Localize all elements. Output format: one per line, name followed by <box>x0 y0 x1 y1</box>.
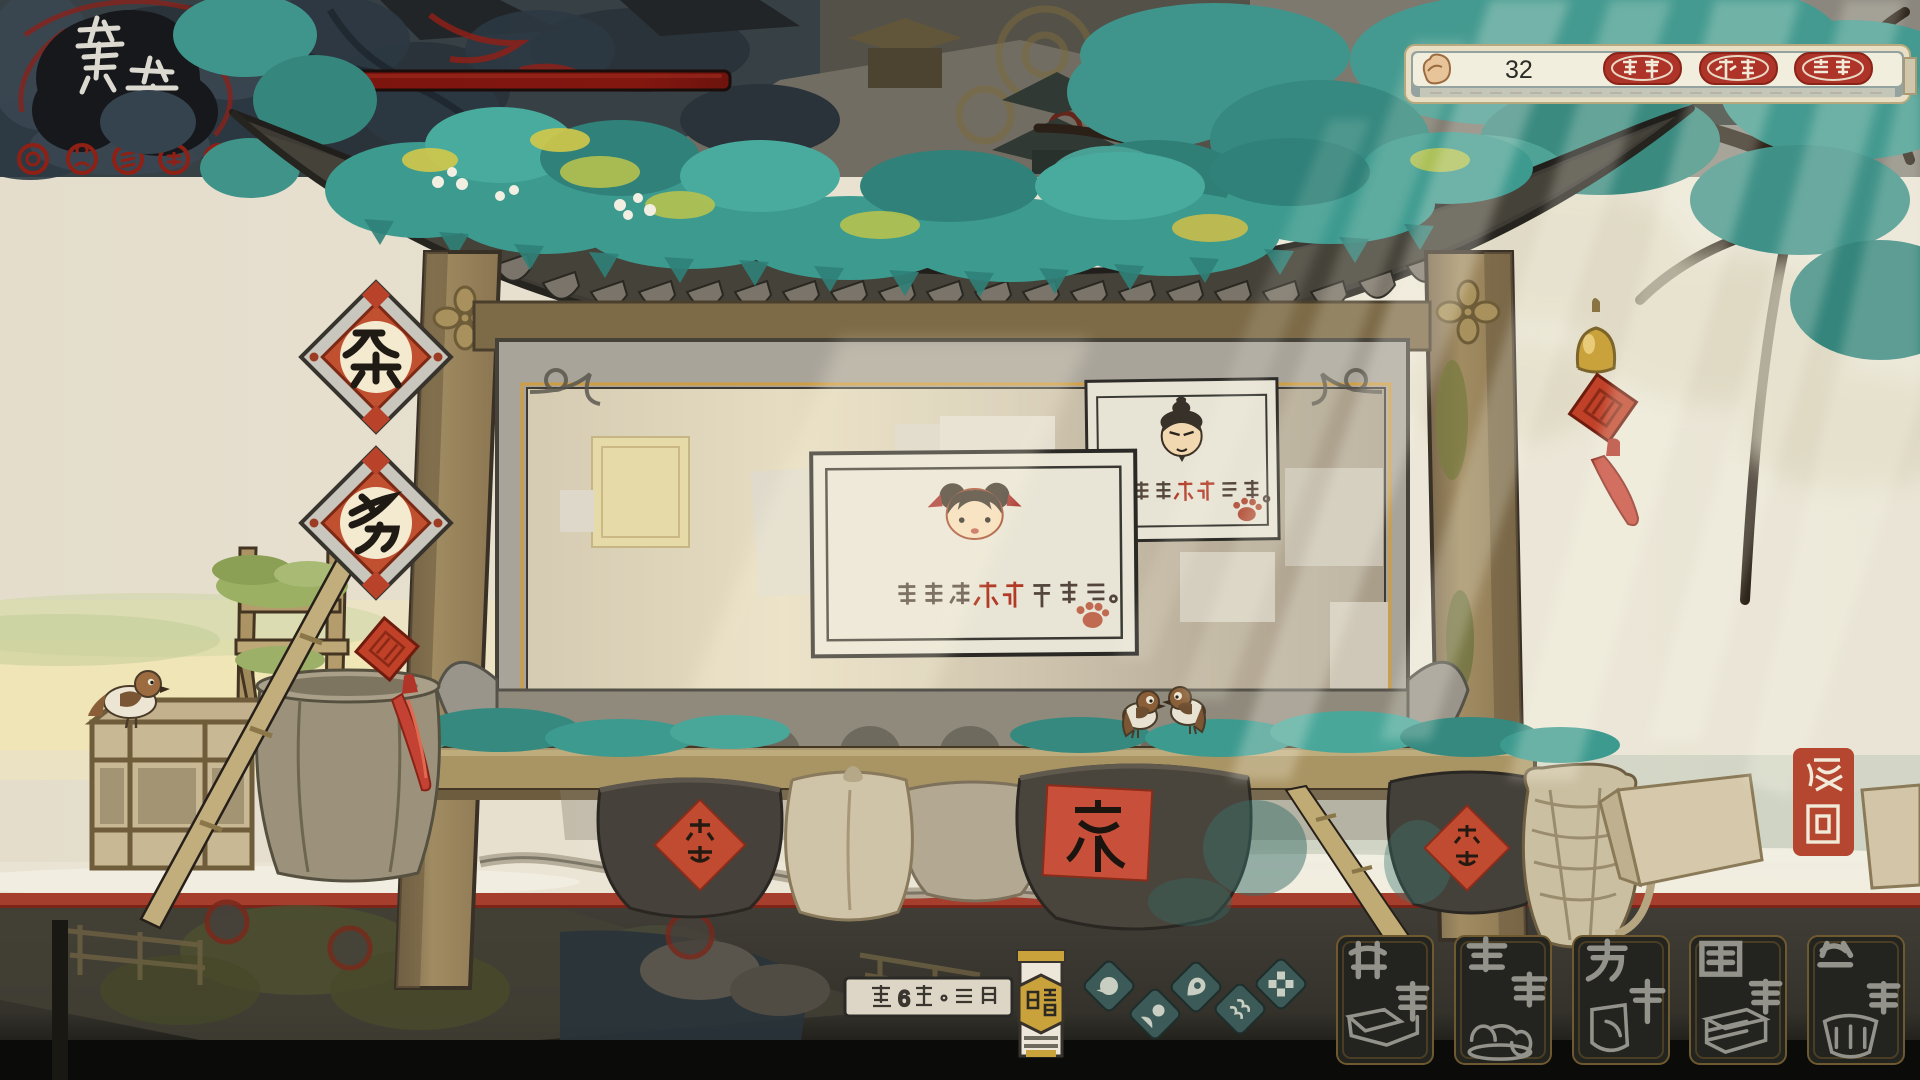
svg-text:32: 32 <box>1505 56 1533 84</box>
svg-text:6: 6 <box>898 986 910 1011</box>
